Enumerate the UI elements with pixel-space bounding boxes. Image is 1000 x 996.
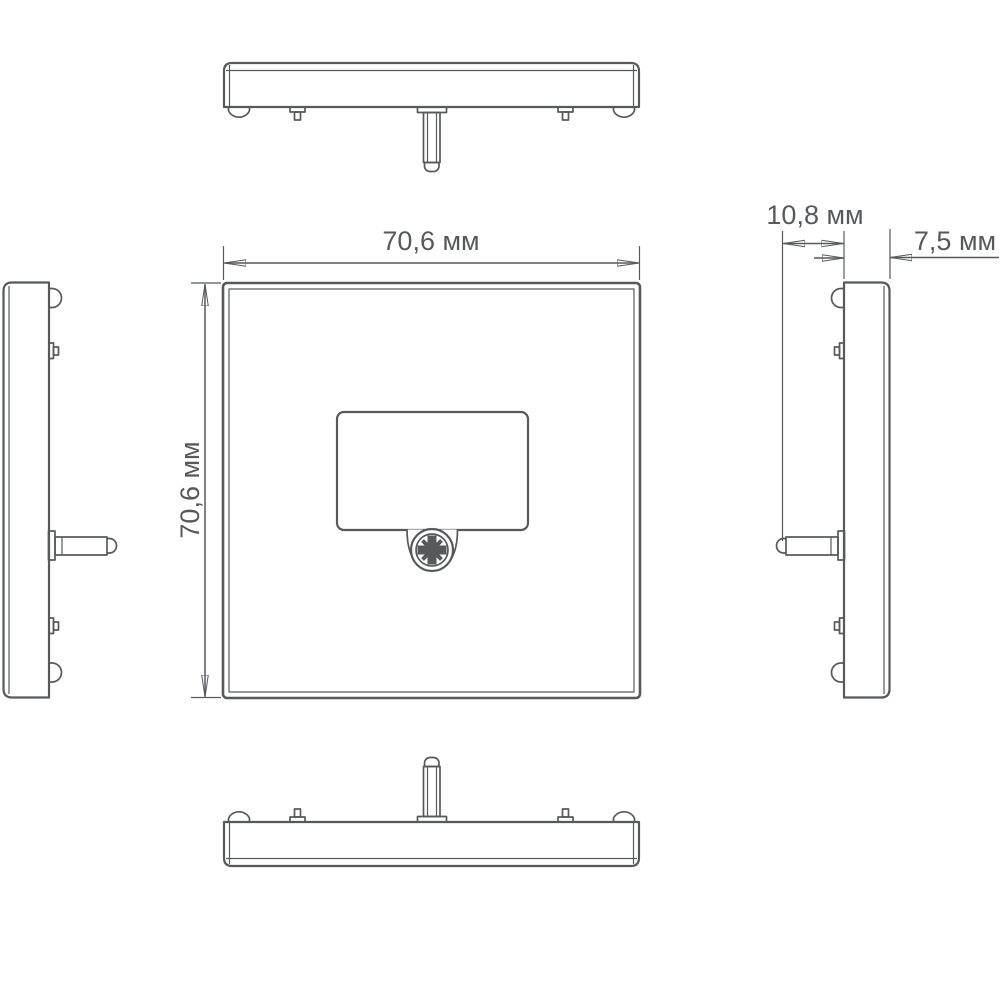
bottom-view — [224, 758, 639, 867]
side-pin-lower-stem — [54, 622, 59, 630]
side-hook-bottom — [49, 663, 62, 682]
front-view — [223, 283, 640, 698]
side-center-pin-tip — [107, 539, 117, 554]
left-view-body-outline — [4, 283, 50, 698]
dimension-depth-body: 7,5 мм — [814, 226, 999, 279]
top-view — [224, 63, 639, 172]
center-pin-tip — [425, 758, 440, 767]
mounting-hook-right — [614, 107, 635, 117]
side-center-pin-tip — [777, 539, 787, 554]
side-pin-upper-stem — [835, 347, 840, 355]
mounting-hook-right — [614, 812, 635, 822]
right-side-view — [777, 283, 890, 698]
mounting-pin-right-stem — [563, 112, 569, 120]
left-side-view — [4, 283, 117, 698]
side-pin-upper-stem — [54, 347, 59, 355]
bottom-view-body-outline — [224, 822, 639, 866]
technical-drawing-page: 70,6 мм 70,6 мм 10,8 мм 7,5 мм — [0, 0, 1000, 996]
dimension-depth-body-label: 7,5 мм — [914, 226, 996, 256]
label-window — [337, 412, 528, 530]
mounting-pin-left-stem — [295, 809, 301, 817]
dimension-height-label: 70,6 мм — [175, 441, 205, 538]
dimension-depth-overall-label: 10,8 мм — [766, 200, 863, 230]
mounting-pin-right-stem — [563, 809, 569, 817]
center-pin-shaft — [424, 113, 441, 163]
center-pin-tip — [425, 163, 440, 172]
dimension-width: 70,6 мм — [224, 226, 640, 280]
front-outer-edge — [223, 283, 640, 698]
dimension-width-label: 70,6 мм — [382, 226, 479, 256]
right-view-body-outline — [844, 283, 890, 698]
dimension-height: 70,6 мм — [175, 283, 221, 698]
center-pin-shaft — [424, 767, 441, 817]
side-hook-top — [49, 289, 61, 308]
mounting-pin-left-stem — [295, 112, 301, 120]
side-center-pin-shaft — [786, 537, 838, 555]
dimension-depth-overall: 10,8 мм — [766, 200, 863, 541]
side-center-pin-shaft — [55, 537, 107, 555]
front-inner-edge — [229, 289, 634, 692]
side-hook-top — [832, 289, 844, 308]
wall-plate-drawing: 70,6 мм 70,6 мм 10,8 мм 7,5 мм — [0, 0, 1000, 996]
side-pin-lower-stem — [835, 622, 840, 630]
top-view-body-outline — [224, 63, 639, 107]
mounting-hook-left — [229, 812, 250, 822]
side-hook-bottom — [832, 663, 845, 682]
mounting-hook-left — [229, 107, 250, 117]
